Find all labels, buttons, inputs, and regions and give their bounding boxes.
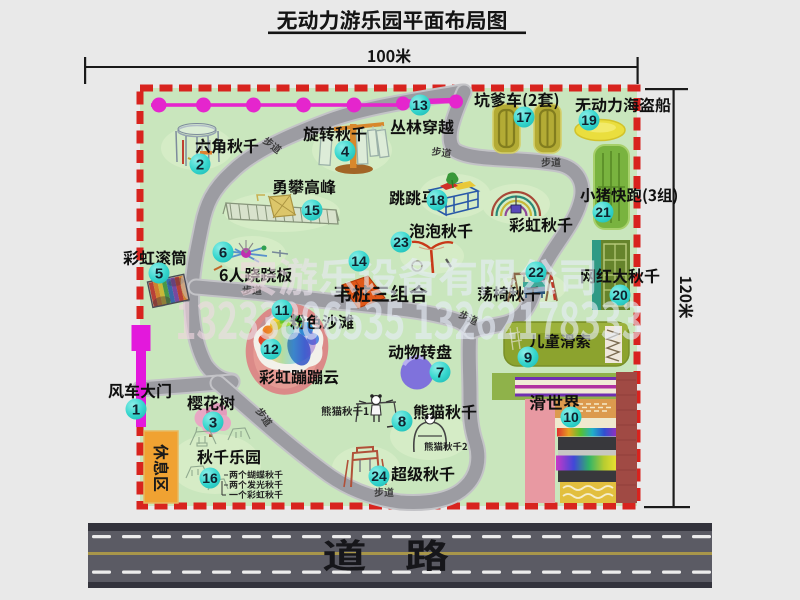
- svg-text:24: 24: [371, 468, 387, 484]
- svg-text:14: 14: [351, 253, 367, 269]
- svg-text:22: 22: [528, 264, 544, 280]
- svg-text:16: 16: [202, 470, 218, 486]
- svg-text:9: 9: [524, 349, 532, 366]
- svg-text:20: 20: [612, 287, 628, 303]
- svg-text:15: 15: [304, 202, 320, 218]
- svg-text:1: 1: [132, 401, 140, 418]
- svg-text:10: 10: [563, 409, 579, 425]
- svg-text:4: 4: [341, 143, 350, 160]
- svg-text:7: 7: [436, 364, 444, 381]
- svg-text:11: 11: [275, 302, 290, 318]
- svg-text:8: 8: [398, 413, 406, 430]
- svg-text:23: 23: [393, 234, 409, 250]
- svg-text:12: 12: [263, 341, 279, 357]
- svg-text:13: 13: [412, 97, 428, 113]
- svg-text:17: 17: [516, 109, 532, 125]
- svg-text:19: 19: [581, 112, 597, 128]
- svg-text:2: 2: [196, 156, 204, 173]
- svg-text:21: 21: [595, 204, 611, 220]
- svg-text:5: 5: [155, 265, 163, 282]
- svg-text:18: 18: [429, 192, 445, 208]
- svg-text:6: 6: [219, 244, 227, 261]
